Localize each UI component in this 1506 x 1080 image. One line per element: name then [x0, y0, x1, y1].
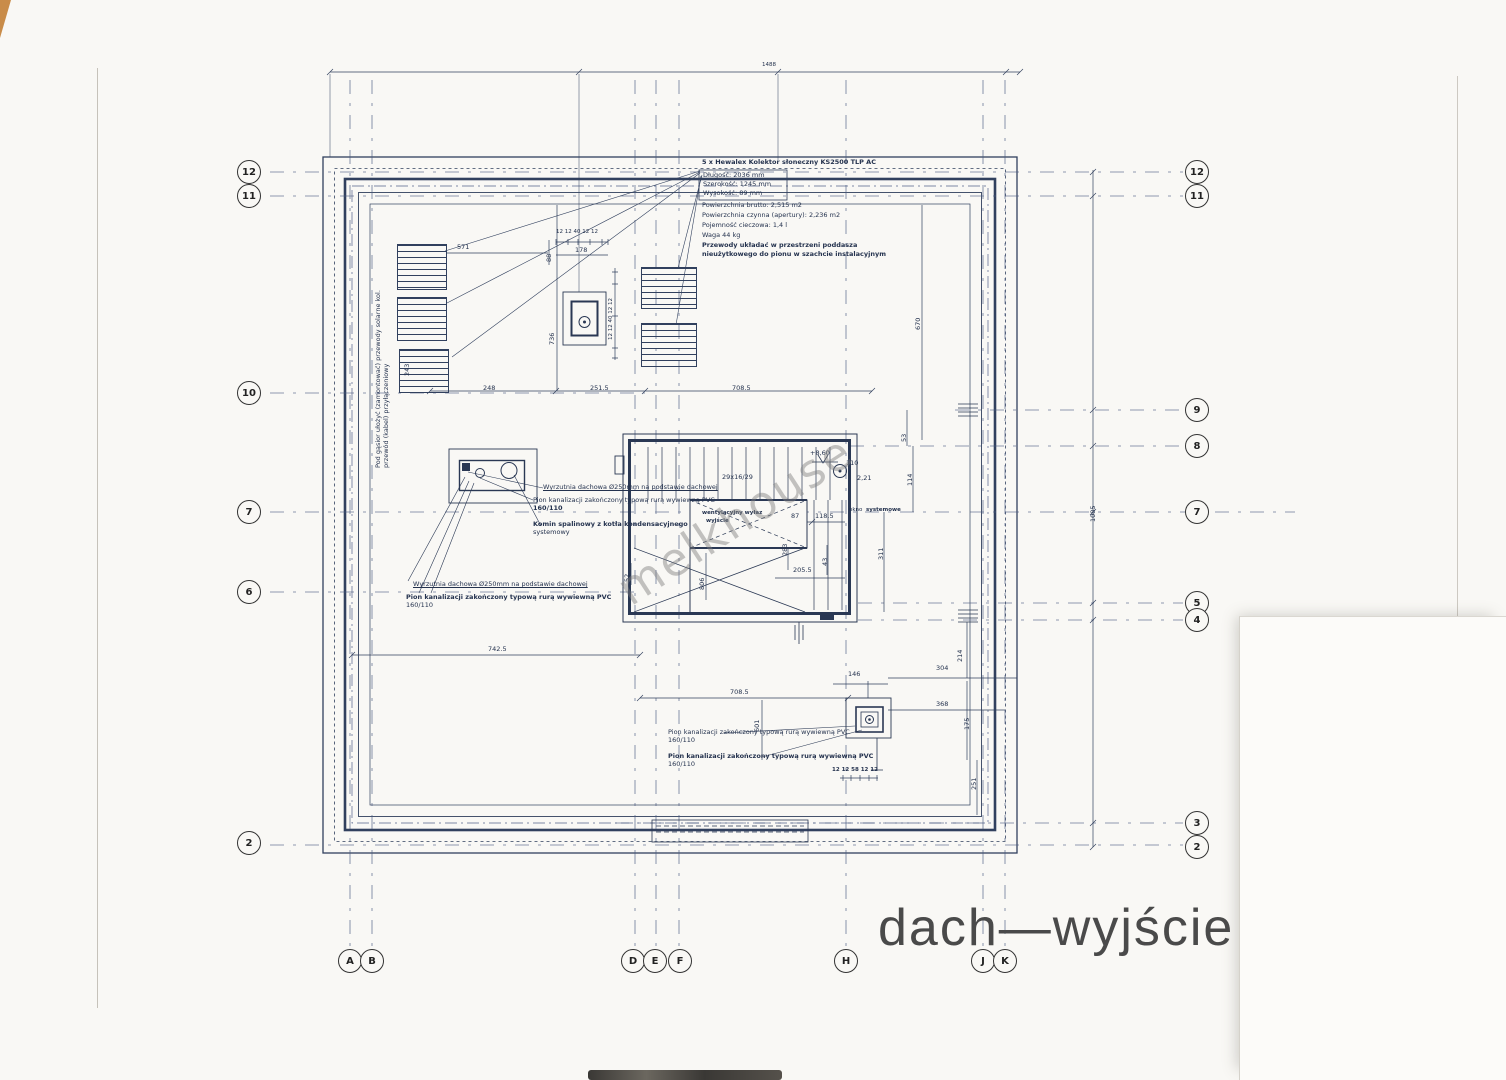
solar-collector-1: [397, 244, 447, 290]
label-systemowe: systemowe: [866, 507, 901, 514]
label-pion-4: Pion kanalizacji zakończony typową rurą …: [668, 752, 873, 760]
dim-2055: 205.5: [793, 566, 812, 574]
label-pion-4-size: 160/110: [668, 760, 695, 768]
dim-comb-right: 12 12 40 12 12: [608, 298, 615, 340]
dim-7425: 742.5: [488, 645, 507, 653]
axis-bubble-right-8: 8: [1185, 434, 1209, 458]
solar-note-height: Wysokość: 89 mm: [703, 189, 762, 197]
axis-bubble-bottom-f: F: [668, 949, 692, 973]
page-fold: [1239, 616, 1506, 1080]
dim-283: 283: [781, 544, 789, 556]
dim-601: 601: [753, 720, 761, 732]
axis-bubble-right-4: 4: [1185, 608, 1209, 632]
label-okno: okno: [849, 507, 862, 514]
dim-2515: 251.5: [590, 384, 609, 392]
axis-bubble-left-6: 6: [237, 580, 261, 604]
solar-note-width: Szerokość: 1245 mm: [703, 180, 771, 188]
axis-bubble-left-12: 12: [237, 160, 261, 184]
solar-collector-2: [397, 297, 447, 341]
solar-note-area-gross: Powierzchnia brutto: 2,515 m2: [702, 201, 802, 209]
scanned-roof-plan: 12 11 10 7 6 2 12 11 9 8 7 5 4 3 2 A B D…: [0, 0, 1506, 1080]
dim-1085: 1085: [1089, 505, 1097, 522]
dim-1185: 118.5: [815, 512, 834, 520]
roof-note: Pod gąsior ułożyć (zamontować) przewody …: [374, 290, 390, 468]
axis-bubble-right-2: 2: [1185, 835, 1209, 859]
chimney-assembly: [408, 449, 543, 593]
scan-artifact-bar: [588, 1070, 782, 1080]
axis-bubble-bottom-e: E: [643, 949, 667, 973]
solar-collector-4: [641, 267, 697, 309]
roof-note-line1: Pod gąsior ułożyć (zamontować) przewody …: [374, 290, 382, 468]
axis-bubble-bottom-b: B: [360, 949, 384, 973]
axis-bubble-left-11: 11: [237, 184, 261, 208]
label-pion-2: Pion kanalizacji zakończony typową rurą …: [406, 593, 611, 601]
label-pion-1: Pion kanalizacji zakończony typową rurą …: [533, 496, 715, 504]
roof-note-line2: przewód (kabel) przyłączeniowy: [382, 290, 390, 468]
dim-total-top: 1488: [762, 62, 776, 69]
label-komin-2: systemowy: [533, 528, 570, 536]
label-wyrzutnia-2: Wyrzutnia dachowa Ø250mm na podstawie da…: [413, 580, 588, 588]
drawing-title: dach—wyjście: [878, 898, 1234, 958]
dim-175: 175: [963, 718, 971, 730]
dim-304: 304: [936, 664, 948, 672]
label-221: 2,21: [857, 474, 871, 482]
dim-248: 248: [483, 384, 495, 392]
dim-114: 114: [906, 474, 914, 486]
dim-670: 670: [914, 318, 922, 330]
axis-bubble-right-11: 11: [1185, 184, 1209, 208]
axis-bubble-right-12: 12: [1185, 160, 1209, 184]
solar-note-length: Długość: 2036 mm: [703, 171, 765, 179]
dim-571: 571: [457, 243, 469, 251]
dim-243: 243: [403, 364, 411, 376]
axis-bubble-right-9: 9: [1185, 398, 1209, 422]
label-pion-2-size: 160/110: [406, 601, 433, 609]
dim-736: 736: [548, 333, 556, 345]
label-wyrzutnia-1: Wyrzutnia dachowa Ø250mm na podstawie da…: [543, 483, 718, 491]
dim-214: 214: [956, 650, 964, 662]
axis-bubble-bottom-a: A: [338, 949, 362, 973]
dim-comb-top: 12 12 40 12 12: [556, 229, 598, 236]
axis-bubble-right-7: 7: [1185, 500, 1209, 524]
dim-7085a: 708.5: [732, 384, 751, 392]
label-pion-3-size: 160/110: [668, 736, 695, 744]
roof-vent-square: [563, 292, 606, 345]
solar-note-header: 5 x Hewalex Kolektor słoneczny KS2500 TL…: [702, 158, 876, 166]
dim-806: 806: [698, 578, 706, 590]
dim-146: 146: [848, 670, 860, 678]
solar-note-area-aperture: Powierzchnia czynna (apertury): 2,236 m2: [702, 211, 840, 219]
solar-note-routing-2: nieużytkowego do pionu w szachcie instal…: [702, 250, 886, 258]
dim-88: 88: [545, 254, 553, 262]
solar-note-routing-1: Przewody układać w przestrzeni poddasza: [702, 241, 857, 249]
dim-311: 311: [877, 548, 885, 560]
axis-bubble-bottom-d: D: [621, 949, 645, 973]
axis-bubble-right-3: 3: [1185, 811, 1209, 835]
dim-368: 368: [936, 700, 948, 708]
axis-bubble-left-2: 2: [237, 831, 261, 855]
leader-fan: [445, 170, 787, 357]
label-komin-1: Komin spalinowy z kotła kondensacyjnego: [533, 520, 688, 528]
solar-collector-5: [641, 323, 697, 367]
dim-comb-bottom: 12 12 58 12 12: [832, 767, 878, 774]
solar-note-weight: Waga 44 kg: [702, 231, 740, 239]
label-pion-1-size: 160/110: [533, 504, 563, 512]
dim-43: 43: [821, 558, 829, 566]
axis-bubble-left-10: 10: [237, 381, 261, 405]
dim-7085b: 708.5: [730, 688, 749, 696]
axis-bubble-left-7: 7: [237, 500, 261, 524]
wall-hatch-marks: [958, 404, 978, 622]
dim-251: 251: [970, 778, 978, 790]
axis-bubble-bottom-h: H: [834, 949, 858, 973]
solar-note-capacity: Pojemność cieczowa: 1,4 l: [702, 221, 787, 229]
dim-53: 53: [900, 434, 908, 442]
dim-178: 178: [575, 246, 587, 254]
